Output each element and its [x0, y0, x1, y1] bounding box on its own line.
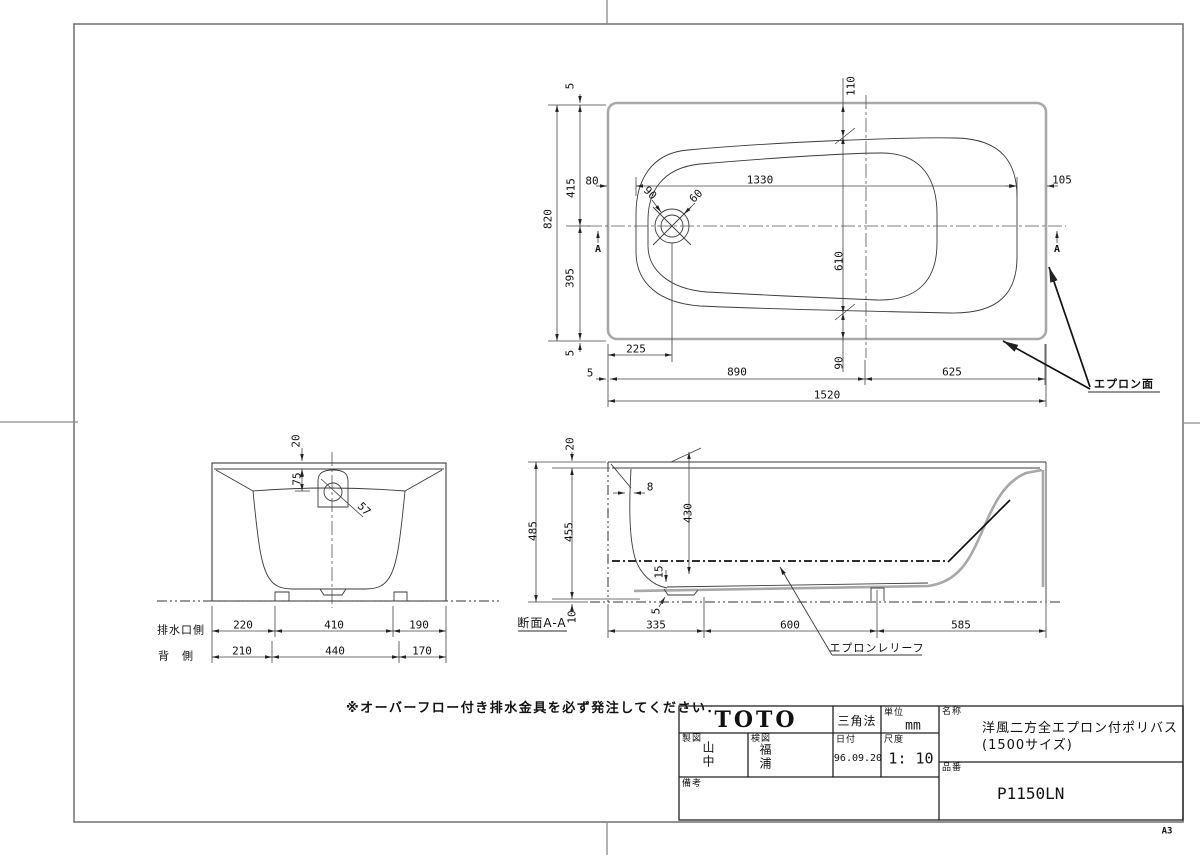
endview-row1-410: 410: [324, 620, 344, 631]
section-dim-455: 455: [564, 522, 575, 542]
unit-value: mm: [905, 720, 921, 733]
name-label: 名称: [942, 708, 962, 717]
checker-name: 福浦: [759, 743, 771, 771]
plan-dim-1520: 1520: [814, 390, 841, 401]
section-dim-15: 15: [654, 565, 665, 578]
endview-dim-75: 75: [292, 472, 303, 485]
endview-basin: [253, 491, 405, 589]
toto-logo: TOTO: [714, 709, 797, 731]
apron-relief-label: エプロンレリーフ: [829, 643, 924, 654]
tub-basin-bottom: [648, 153, 937, 300]
section-dim-585: 585: [951, 620, 971, 631]
sheet-size-label: A3: [1162, 828, 1173, 837]
date-label: 日付: [836, 736, 856, 745]
drafter-label: 製図: [682, 735, 702, 744]
endview-row2-label: 背 側: [158, 651, 194, 662]
section-dim-335: 335: [646, 620, 666, 631]
tub-inner-rim: [636, 138, 1017, 313]
drafter-name: 山中: [702, 741, 714, 769]
section-title: 断面A-A: [517, 617, 566, 629]
projection-method: 三角法: [837, 715, 876, 727]
plan-dim-415: 415: [566, 178, 577, 198]
endview-row2-440: 440: [325, 646, 345, 657]
plan-dim-890: 890: [727, 367, 747, 378]
part-number-label: 品番: [942, 764, 962, 773]
remarks-label: 備考: [682, 780, 702, 789]
overflow-hole: [324, 483, 342, 501]
apron-face-label: エプロン面: [1094, 379, 1154, 390]
part-number-value: P1150LN: [997, 786, 1064, 802]
unit-label: 単位: [884, 709, 904, 718]
plan-dim-90-chain: 90: [834, 356, 845, 369]
plan-dim-110: 110: [846, 76, 857, 96]
section-dim-5: 5: [651, 608, 662, 615]
drawing-sheet: 5 415 820 395 5 80 1330 105 110 610 90 9…: [0, 0, 1200, 855]
section-marker-a-left: A: [595, 245, 601, 255]
product-name-line1: 洋風二方全エプロン付ポリバス: [982, 722, 1178, 735]
endview-row1-190: 190: [409, 620, 429, 631]
section-apron-profile: [634, 470, 1042, 591]
plan-dim-395: 395: [565, 268, 576, 288]
section-dim-485: 485: [528, 521, 539, 541]
plan-dim-225: 225: [626, 344, 646, 355]
endview-dim-20: 20: [291, 434, 302, 447]
endview-row2-170: 170: [412, 646, 432, 657]
section-dim-430: 430: [683, 503, 694, 523]
endview-row1-220: 220: [233, 620, 253, 631]
scale-value: 1: 10: [888, 752, 933, 767]
section-marker-a-right: A: [1054, 245, 1060, 255]
plan-dim-820: 820: [543, 209, 554, 229]
plan-dim-5-top: 5: [565, 83, 576, 90]
plan-dim-610: 610: [834, 251, 845, 271]
date-value: 96.09.20: [834, 754, 882, 764]
plan-view: [548, 78, 1160, 407]
plan-dim-5-bottom: 5: [565, 350, 576, 357]
section-dim-600: 600: [780, 620, 800, 631]
plan-dim-105: 105: [1052, 175, 1072, 186]
scale-label: 尺度: [884, 736, 904, 745]
section-dim-10: 10: [567, 610, 578, 623]
plan-dim-5-edge: 5: [587, 368, 594, 379]
plan-dim-625: 625: [942, 367, 962, 378]
tub-outer-rim: [608, 103, 1046, 339]
section-dim-20: 20: [565, 437, 576, 450]
section-dim-8: 8: [647, 482, 654, 493]
plan-dim-80: 80: [585, 176, 598, 187]
apron-relief-leader: [780, 567, 832, 655]
plan-dim-1330: 1330: [747, 175, 774, 186]
order-note: ※オーバーフロー付き排水金具を必ず発注してください．: [346, 702, 721, 715]
product-name-line2: (1500サイズ): [982, 739, 1073, 752]
endview-row1-label: 排水口側: [157, 625, 205, 636]
endview-row2-210: 210: [232, 646, 252, 657]
